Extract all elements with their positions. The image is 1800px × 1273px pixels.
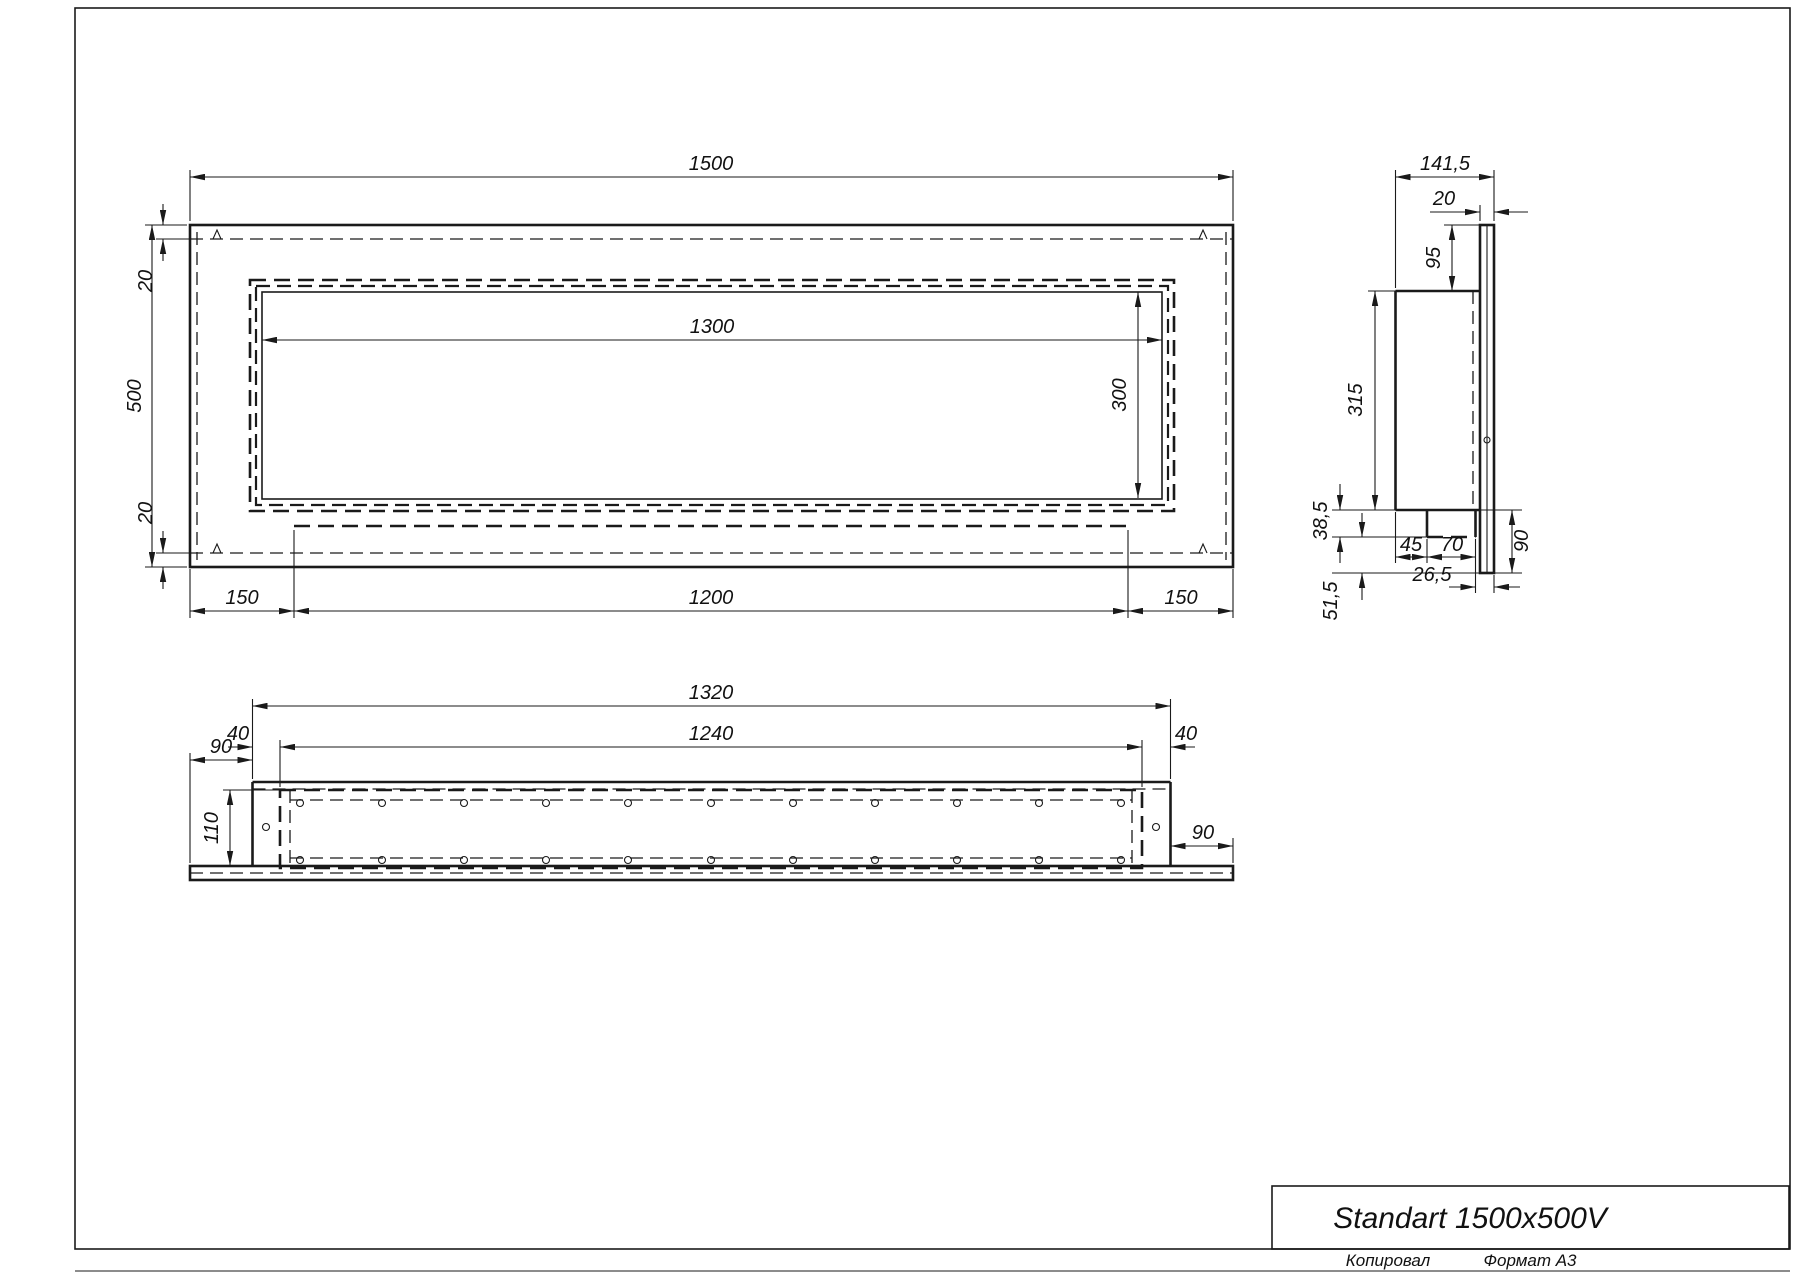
dim-front-opening-height: 300 [1109, 292, 1138, 498]
dim-front-top-margin: 20 [135, 204, 190, 293]
footer-format-label: Формат А3 [1483, 1251, 1577, 1270]
front-view: 1500 500 20 20 1300 [124, 153, 1233, 618]
bottom-opening [263, 790, 1160, 868]
dim-front-opening-width: 1300 [262, 316, 1162, 340]
dim-side-bottom-gap: 51,5 [1320, 513, 1480, 620]
dim-label-500: 500 [124, 379, 146, 412]
dim-side-body-height: 315 [1332, 291, 1396, 510]
dim-label-40-right: 40 [1175, 723, 1197, 745]
dim-label-1500: 1500 [689, 153, 734, 175]
side-tray [1427, 510, 1476, 537]
dim-label-90-side: 90 [1511, 530, 1533, 552]
dim-label-51-5: 51,5 [1320, 581, 1342, 621]
dim-label-38-5: 38,5 [1310, 501, 1332, 541]
footer-copy-label: Копировал [1346, 1251, 1431, 1270]
dim-label-95: 95 [1423, 246, 1445, 269]
dim-front-overall-width: 1500 [190, 153, 1233, 221]
front-opening [250, 280, 1174, 511]
front-frame-outline [190, 225, 1233, 567]
dim-side-tray-to-front: 26,5 [1412, 564, 1520, 593]
dim-label-20-flange: 20 [1432, 188, 1455, 210]
drawing-page: 1500 500 20 20 1300 [0, 0, 1800, 1273]
dim-label-20-top: 20 [135, 270, 157, 293]
dim-label-1320: 1320 [689, 682, 734, 704]
dim-label-150-left: 150 [225, 587, 258, 609]
dim-label-20-bottom: 20 [135, 502, 157, 525]
bottom-view: 1320 1240 40 40 90 90 110 [190, 682, 1233, 880]
sheet-frame [75, 8, 1790, 1249]
dim-label-300: 300 [1109, 378, 1131, 411]
dim-bottom-opening-chain: 1240 40 40 [227, 723, 1197, 787]
bottom-body [253, 782, 1171, 866]
dim-label-315: 315 [1345, 382, 1367, 416]
drawing-title: Standart 1500x500V [1333, 1202, 1610, 1235]
dim-label-141-5: 141,5 [1420, 153, 1471, 175]
dim-label-1240: 1240 [689, 723, 734, 745]
dim-label-1200: 1200 [689, 587, 734, 609]
dim-front-bottom-chain: 150 1200 150 [190, 530, 1233, 618]
drawing-border [75, 8, 1790, 1271]
dim-bottom-opening-depth: 110 [201, 790, 280, 866]
side-view: 141,5 20 95 315 38,5 [1310, 153, 1533, 620]
dim-label-26-5: 26,5 [1412, 564, 1453, 586]
title-block: Standart 1500x500V Копировал Формат А3 [1272, 1186, 1789, 1270]
side-body [1396, 291, 1481, 510]
dim-label-70: 70 [1441, 534, 1463, 556]
technical-drawing: 1500 500 20 20 1300 [0, 0, 1800, 1273]
dim-side-top-offset: 95 [1423, 225, 1480, 291]
dim-side-flange-thickness: 20 [1430, 188, 1528, 221]
dim-bottom-flange-right: 90 [1171, 822, 1234, 863]
dim-label-110: 110 [201, 812, 223, 844]
dim-side-below-body: 90 [1480, 510, 1533, 573]
dim-label-45: 45 [1400, 534, 1423, 556]
dim-label-90-right: 90 [1192, 822, 1214, 844]
dim-front-bottom-margin: 20 [135, 502, 190, 589]
dim-label-90-left: 90 [210, 736, 232, 758]
screw-holes [263, 800, 1160, 864]
dim-label-150-right: 150 [1164, 587, 1197, 609]
dim-label-1300: 1300 [690, 316, 735, 338]
